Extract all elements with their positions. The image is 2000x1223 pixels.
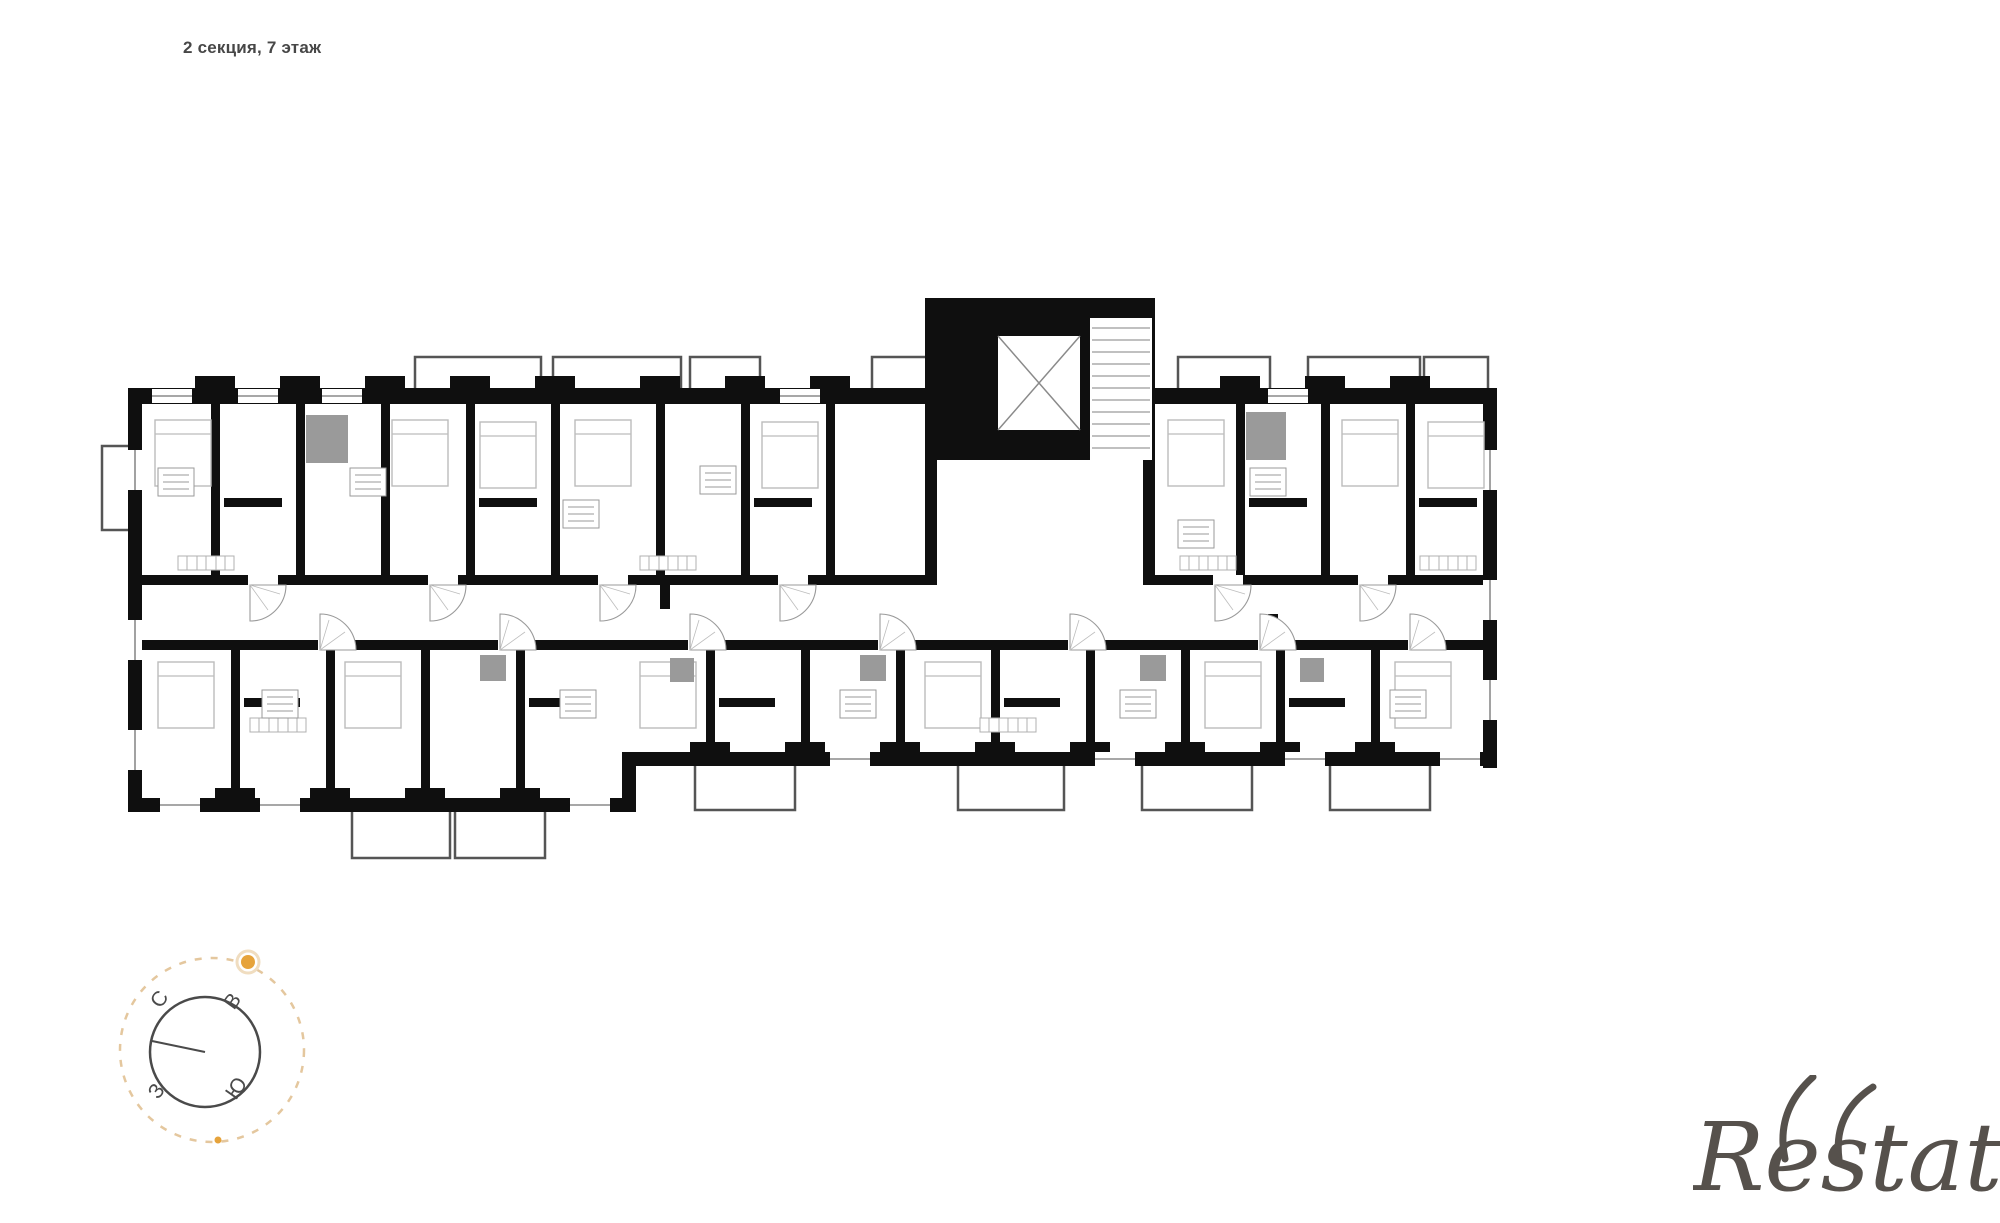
stair-elevator-core — [925, 298, 1155, 585]
staircase — [1090, 318, 1152, 460]
watermark-text: Restate — [1693, 1103, 2000, 1213]
compass-rose: С В Ю З — [105, 935, 335, 1185]
doors — [248, 575, 1446, 650]
watermark: Restate — [1693, 1075, 2000, 1223]
compass-label-north: С — [146, 986, 174, 1012]
sun-icon — [241, 955, 255, 969]
sun-minor-dot — [215, 1137, 222, 1144]
